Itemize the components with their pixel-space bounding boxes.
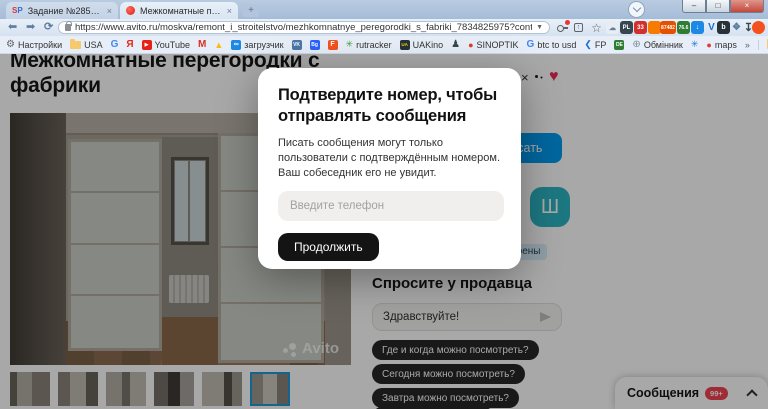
continue-button[interactable]: Продолжить (278, 233, 379, 261)
doc-icon: Bg (310, 40, 320, 50)
modal-body-text: Писать сообщения могут только пользовате… (278, 136, 501, 181)
url-text: https://www.avito.ru/moskva/remont_i_str… (75, 22, 532, 33)
extension-swirl-icon[interactable]: ◔ (763, 21, 768, 34)
pin-icon: ● (468, 40, 473, 50)
rutracker-icon: ✳ (346, 39, 354, 50)
back-button[interactable]: ⬅ (8, 20, 17, 33)
browser-profile-button[interactable] (628, 1, 645, 18)
phone-input[interactable] (278, 191, 504, 221)
browser-tab-avito[interactable]: Межкомнатные перегородки с ф × (120, 2, 238, 19)
extension-ltc-icon[interactable]: 76.6 (677, 21, 690, 34)
mouse-cursor (535, 75, 538, 78)
maximize-button[interactable]: □ (706, 0, 730, 13)
loader-icon: ∞ (231, 40, 241, 50)
minimize-button[interactable]: – (682, 0, 706, 13)
gear-icon: ⚙ (6, 39, 15, 50)
bookmark-snowflake[interactable]: ✳ (691, 39, 699, 50)
address-bar[interactable]: https://www.avito.ru/moskva/remont_i_str… (58, 21, 550, 34)
bookmark-youtube[interactable]: ▶YouTube (142, 40, 190, 50)
browser-tab-task[interactable]: SP Задание №2851455 - просмотр з × (6, 2, 118, 19)
forward-button[interactable]: ➡ (26, 20, 35, 33)
bookmark-blue-doc[interactable]: Bg (310, 40, 320, 50)
red-dot-favicon (126, 6, 135, 15)
gmail-icon: M (198, 39, 206, 50)
youtube-icon: ▶ (142, 40, 152, 50)
chevron-down-icon (632, 4, 640, 12)
bookmark-loader[interactable]: ∞загрузчик (231, 40, 283, 50)
google-icon: G (527, 39, 535, 50)
google-icon: G (111, 39, 119, 50)
bookmark-google[interactable]: G (111, 39, 119, 50)
extension-cloud-icon[interactable]: ☁ (606, 21, 619, 34)
vk-icon: VK (292, 40, 302, 50)
extension-33-icon[interactable]: 33 (634, 21, 647, 34)
browser-toolbar: ⬅ ➡ ⟳ https://www.avito.ru/moskva/remont… (0, 19, 768, 36)
bookmarks-bar: ⚙Настройки USA G Я ▶YouTube M ▲ ∞загрузч… (0, 36, 768, 54)
bookmark-star-icon[interactable]: ☆ (590, 21, 603, 34)
bookmark-uakino[interactable]: UAUAKino (400, 40, 444, 50)
password-key-icon[interactable] (556, 21, 569, 34)
bookmark-chess[interactable]: ♟ (451, 39, 460, 50)
de-icon: DE (614, 40, 624, 50)
bookmark-sinoptik[interactable]: ●SINOPTIK (468, 40, 518, 50)
lock-icon (65, 24, 71, 31)
arrow-icon: ❮ (584, 39, 592, 50)
bookmark-gmail[interactable]: M (198, 39, 206, 50)
bookmark-vk[interactable]: VK (292, 40, 302, 50)
chess-icon: ♟ (451, 39, 460, 50)
tab-title: Межкомнатные перегородки с ф (140, 6, 222, 16)
yandex-icon: Я (126, 39, 133, 50)
sp-favicon: SP (12, 6, 23, 15)
bookmark-btc[interactable]: Gbtc to usd (527, 39, 577, 50)
bookmark-rutracker[interactable]: ✳rutracker (346, 39, 392, 50)
extension-ticker-icon[interactable]: 87482 (660, 21, 676, 34)
url-dropdown-icon[interactable]: ▼ (536, 24, 543, 31)
f-icon: F (328, 40, 338, 50)
bookmark-other-folder[interactable]: Другие закладки (758, 40, 768, 50)
modal-close-icon[interactable]: × (521, 70, 529, 85)
bookmark-settings[interactable]: ⚙Настройки (6, 39, 62, 50)
confirm-phone-modal: Подтвердите номер, чтобы отправлять сооб… (258, 68, 521, 269)
bookmark-de[interactable]: DE (614, 40, 624, 50)
uakino-icon: UA (400, 40, 410, 50)
tab-close-icon[interactable]: × (107, 6, 112, 16)
key-alert-badge (565, 20, 570, 25)
snowflake-icon: ✳ (691, 39, 699, 50)
tab-close-icon[interactable]: × (227, 6, 232, 16)
bookmark-exchange[interactable]: ⊕Обмінник (632, 39, 682, 50)
window-controls: – □ × (682, 0, 764, 13)
tab-strip: SP Задание №2851455 - просмотр з × Межко… (0, 0, 768, 19)
bookmark-fp[interactable]: ❮FP (584, 39, 606, 50)
map-pin-icon: ● (706, 40, 711, 50)
reload-button[interactable]: ⟳ (44, 20, 53, 33)
tab-title: Задание №2851455 - просмотр з (28, 6, 102, 16)
new-tab-button[interactable]: + (243, 4, 259, 17)
folder-icon (70, 41, 81, 49)
globe-icon: ⊕ (632, 39, 640, 50)
bookmarks-overflow[interactable]: » (745, 40, 750, 50)
bookmark-folder-usa[interactable]: USA (70, 40, 103, 50)
extension-pl-icon[interactable]: PL (620, 21, 633, 34)
share-icon[interactable]: ↑ (574, 23, 583, 32)
close-window-button[interactable]: × (730, 0, 764, 13)
extension-download-icon[interactable]: ↓ (691, 21, 704, 34)
bookmark-yandex[interactable]: Я (126, 39, 133, 50)
extension-b-icon[interactable]: b (717, 21, 730, 34)
drive-icon: ▲ (214, 40, 223, 50)
modal-title: Подтвердите номер, чтобы отправлять сооб… (278, 85, 501, 127)
bookmark-drive[interactable]: ▲ (214, 40, 223, 50)
bookmark-f[interactable]: F (328, 40, 338, 50)
bookmark-maps[interactable]: ●maps (706, 40, 736, 50)
